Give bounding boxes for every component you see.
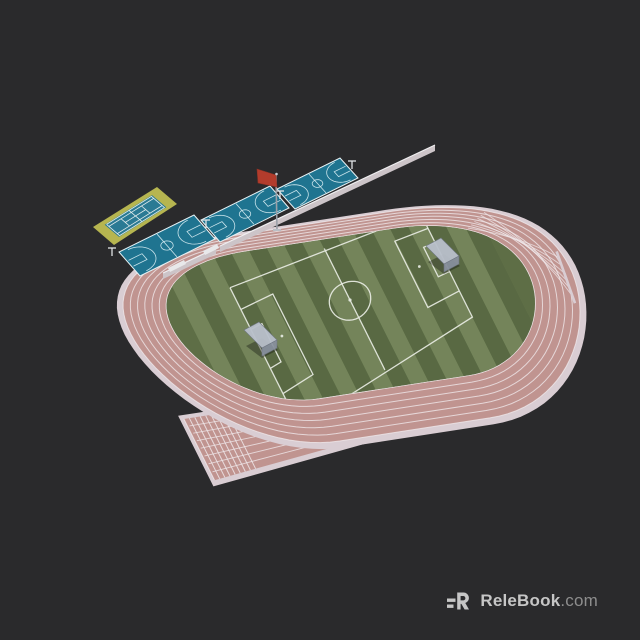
flag-banner (257, 169, 277, 187)
watermark: ReleBook.com (445, 588, 598, 614)
relebook-logo-icon (445, 588, 471, 614)
stadium-3d-render (0, 0, 640, 640)
watermark-suffix: .com (560, 591, 598, 610)
watermark-brand: ReleBook (480, 591, 560, 610)
model-viewport: ReleBook.com (0, 0, 640, 640)
